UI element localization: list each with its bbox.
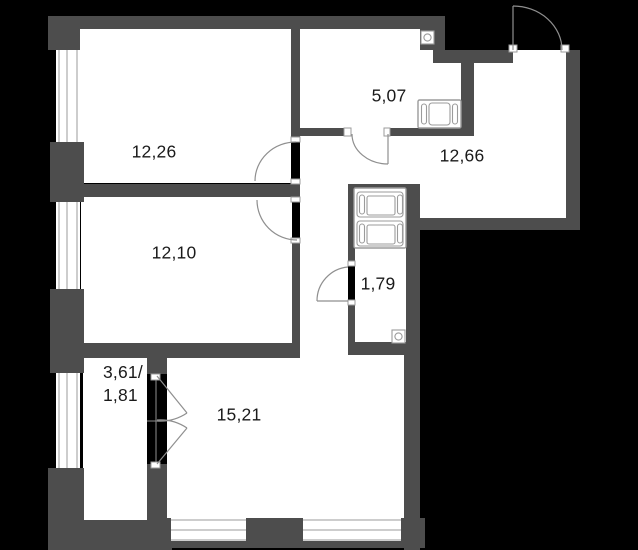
floor-plan: 12,26 5,07 12,66 12,10 1,79 15,21 3,61/ …: [0, 0, 638, 550]
room-12-26-floor: [80, 29, 291, 183]
wall-segment: [78, 184, 300, 197]
balcony-area-total: 3,61/: [103, 361, 143, 384]
room-15-21-floor: [167, 355, 406, 518]
entrance-opening-floor: [513, 50, 566, 63]
wall-segment: [566, 50, 580, 230]
room-label-12-10: 12,10: [152, 243, 197, 264]
ventilation-grille-icon: [421, 31, 434, 44]
wall-segment: [48, 16, 80, 50]
door-jamb: [291, 197, 300, 202]
wall-segment: [390, 128, 474, 136]
window-icon: [56, 50, 80, 142]
floor-plan-drawing: [0, 0, 638, 550]
wall-segment: [461, 63, 474, 136]
wall-segment: [348, 342, 420, 355]
wall-pier: [48, 468, 84, 550]
bathtub-icon: [418, 100, 461, 128]
room-label-15-21: 15,21: [217, 405, 262, 426]
room-label-12-26: 12,26: [132, 142, 177, 163]
wall-segment: [292, 243, 300, 358]
door-jamb: [348, 300, 355, 305]
hallway-strip-floor: [300, 136, 348, 358]
room-12-66-floor: [474, 63, 568, 136]
wall-segment: [81, 343, 296, 358]
wall-segment: [291, 29, 300, 137]
door-jamb: [151, 374, 160, 380]
room-12-10-floor: [81, 197, 292, 343]
room-5-07-floor: [300, 29, 420, 136]
door-jamb: [384, 128, 390, 136]
room-label-5-07: 5,07: [372, 86, 407, 107]
room-label-balcony: 3,61/ 1,81: [103, 361, 143, 407]
wall-segment: [420, 218, 580, 230]
wall-pier: [50, 289, 84, 373]
door-jamb: [344, 128, 351, 136]
balcony-area-counted: 1,81: [103, 384, 143, 407]
ventilation-grille-icon: [392, 330, 405, 343]
window-icon: [171, 518, 246, 541]
wall-segment: [147, 464, 167, 520]
wall-segment: [147, 343, 167, 374]
wall-pier: [50, 142, 84, 202]
window-icon: [56, 373, 80, 468]
wall-segment: [433, 50, 513, 63]
wall-segment: [406, 184, 420, 355]
room-label-12-66: 12,66: [440, 146, 485, 167]
door-jamb: [291, 179, 300, 184]
window-icon: [56, 202, 80, 289]
wall-segment: [48, 16, 445, 29]
door-jamb: [291, 137, 300, 142]
washer-dryer-stack-icon: [354, 188, 406, 248]
window-icon: [303, 518, 401, 541]
room-label-1-79: 1,79: [361, 274, 396, 295]
door-jamb: [348, 261, 355, 266]
